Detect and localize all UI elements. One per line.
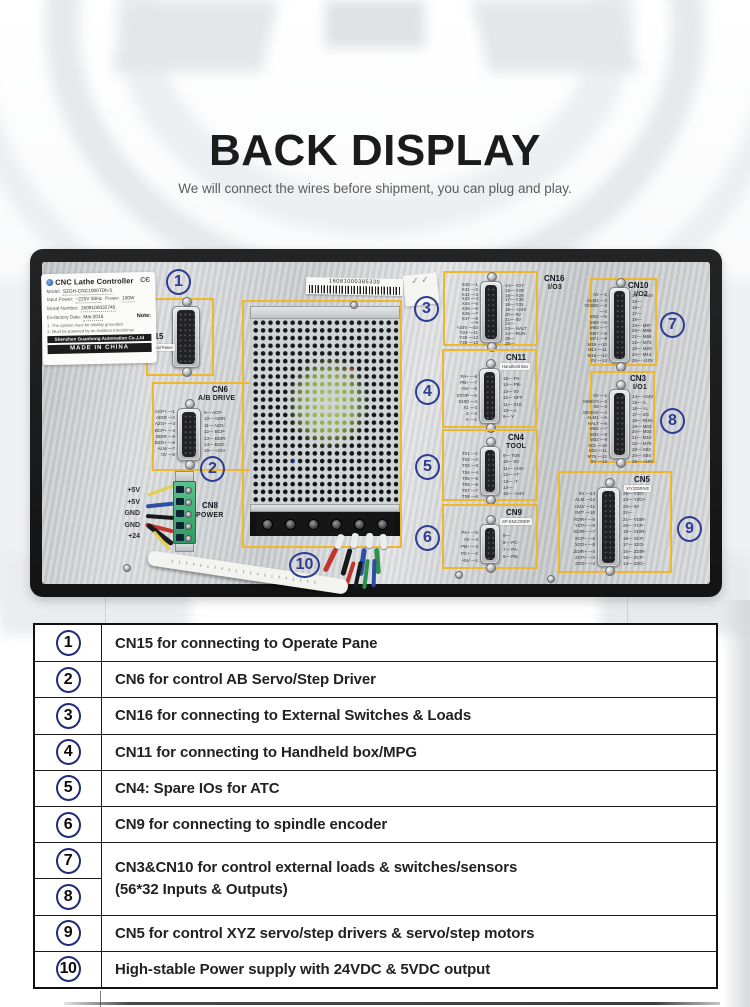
wire-crimp [350,533,359,549]
terminal-screw [185,499,192,506]
cn3-sublabel: I/O1 [633,384,647,392]
cn10-pinout-left: 0V —1ALM2 —2#24/B0 —3—4M22 —5M59 —6M63 —… [592,292,607,364]
row-description: CN16 for connecting to External Switches… [102,698,716,733]
cn8-wire-labels: +5V+5VGNDGND+24 [108,485,140,543]
pin-label: +5V [108,497,140,509]
bg-shape [471,0,639,72]
cn16-label: CN16 [544,274,564,283]
bg-edge-shade [722,600,750,1007]
nameplate-field: Input Power: ~220V 50Hz Power: 100W [47,296,151,304]
row-description: CN9 for connecting to spindle encoder [102,807,716,842]
field-value: ~220V 50Hz [75,297,102,304]
pin-label: T08 —8 [462,494,478,500]
cn11-region: CN11 Handheld Box PA+ —8PB+ —7+5V —6STOP… [442,349,537,428]
wire-crimp [379,534,388,550]
nameplate-origin: MADE IN CHINA [48,343,152,354]
nameplate-brand: CNC Lathe Controller [55,276,138,287]
nameplate-field: Serial Number: 1609100032745 [47,305,151,313]
cn8-label: CN8 [202,501,218,510]
cn5-pinout-left: 0V —13ALM —12+24V —11INT* —10YDIR+ —9YCP… [562,491,595,568]
cn6-pinout-left: ACP+ —1ADIR —2AZO+ —3BCP+ —4BDIR —5BZO+ … [154,409,175,459]
table-row: 4 CN11 for connecting to Handheld box/MP… [35,734,716,770]
row-description-merged: CN3&CN10 for control external loads & sw… [102,843,716,914]
callout-2: 2 [200,456,225,482]
cn3-connector [609,389,630,459]
field-key: Power: [105,297,120,302]
pin-label: 9— [503,533,510,540]
cn15-pins [177,310,195,364]
cn10-connector [609,287,630,363]
field-value: 1609100032745 [81,305,116,312]
row-number-half: 8 [35,879,101,914]
row-description: CN15 for connecting to Operate Pane [102,625,716,661]
row-number-cell: 4 [35,735,102,770]
cn9-pins [485,528,495,560]
callout-1: 1 [166,269,191,295]
terminal-slot [176,534,184,541]
cn4-pins [485,450,495,492]
cn8-sublabel: POWER [196,512,223,520]
pin-label: 0V —8 [161,452,175,458]
cn3-region: CN3 I/O1 0V —1M08/Y3 —2X8 —3M04/A0 —4ALM… [590,371,655,463]
number-badge: 1 [56,630,81,656]
cn11-pinout-left: PA+ —8PB+ —7+5V —6STOP —5X100 —4X1 —3Z —… [446,374,477,424]
number-badge: 8 [56,884,81,910]
terminal-screw [185,511,192,518]
panel-screw [547,575,555,583]
page-subtitle: We will connect the wires before shipmen… [0,181,750,196]
terminal-slot [176,498,184,505]
barcode-sticker: 16081000385330 [306,277,403,296]
terminal-screw [185,487,192,494]
field-key: Model: [46,289,61,294]
cn16-sublabel: I/O3 [548,284,562,292]
number-badge: 5 [56,775,81,801]
cn6-connector [177,408,201,461]
pin-label: ZZO+ —2 [575,561,595,567]
row-number-cell: 9 [35,916,102,951]
row-number-cell: 6 [35,807,102,842]
nameplate-note-line: 2. Must be powered by an isolation trans… [47,328,151,335]
row-number-cell: 3 [35,698,102,733]
page: BACK DISPLAY We will connect the wires b… [0,0,750,1007]
cn10-label: CN10 [628,281,648,290]
callout-4: 4 [415,379,440,405]
psu-bottom-cap [250,504,400,512]
cn4-region: CN4 TOOL T01 —1T02 —2T03 —3T04 —4T05 —5T… [442,429,538,501]
cn10-pins [614,291,625,359]
power-supply-region [242,300,402,548]
bg-line [627,597,628,623]
row-description: CN11 for connecting to Handheld box/MPG [102,735,716,770]
callout-9: 9 [677,516,702,542]
pin-label: 25— +10V [632,459,653,465]
pin-label: 15— +24V [503,491,524,497]
number-badge: 6 [56,812,81,838]
nameplate-company: Shenzhen Guanhong Automation Co.,Ltd [47,334,151,343]
pin-label: 7— PA- [503,547,518,554]
row-description: CN4: Spare IOs for ATC [102,771,716,806]
psu-top-cap [250,306,400,319]
field-value: Mar,2016 [83,315,103,321]
table-row: 1 CN15 for connecting to Operate Pane [35,625,716,661]
field-key: Input Power: [47,298,74,304]
barcode-bars [309,285,400,295]
pin-label: +5V —1 [462,558,478,565]
psu-terminal-strip [256,512,394,536]
panel-screw [123,564,131,572]
row-number-cell-split: 7 8 [35,843,102,914]
field-value: SZGH-CNC1000TDb-5 [63,288,112,295]
bg-shape [325,0,425,48]
terminal-slot [176,486,184,493]
legend-table: 1 CN15 for connecting to Operate Pane 2 … [33,623,718,989]
terminal-screw [331,519,342,530]
table-row: 2 CN6 for control AB Servo/Step Driver [35,661,716,697]
terminal-screw [285,519,296,530]
row-number-cell: 2 [35,662,102,697]
cn5-region: CN5 X/Y/ZDRIVE 0V —13ALM —12+24V —11INT*… [558,471,672,573]
cn11-label: CN11 [506,353,526,362]
pin-label: +5V [108,485,140,497]
row-number-cell: 10 [35,952,102,987]
ce-mark: CЄ [140,277,150,284]
bg-shape [111,0,279,72]
terminal-screw [185,535,192,542]
callout-3: 3 [414,296,439,322]
table-row: 9 CN5 for control XYZ servo/step drivers… [35,915,716,951]
cn8-terminal-block [173,481,196,544]
row-number-cell: 5 [35,771,102,806]
cn11-tag: Handheld Box [500,363,530,370]
panel-screw [455,571,463,579]
cn5-connector [597,487,620,567]
cn10-pinout-right: 14— +24V15—16—17—18—19— M9*20— M9521— M6… [632,293,653,364]
pin-label: +24 [108,531,140,543]
field-key: Ex-factory Date: [47,316,81,322]
row-number-half: 7 [35,843,101,879]
cn6-pins [182,412,196,457]
power-supply-unit [250,306,400,536]
terminal-screw [377,519,388,530]
number-badge: 2 [56,667,81,693]
cn6-label: CN6 [212,385,228,394]
pin-label: GND [108,508,140,520]
terminal-screw [185,523,192,530]
cn11-pinout-right: 15— PA-14— PB-13— 0V12— OFF11— X1010— A9… [503,376,523,421]
nameplate-header: CNC Lathe Controller CЄ [46,276,150,287]
cn9-tag: SP-ENCODER [500,518,532,525]
cn3-pins [614,393,625,455]
callout-5: 5 [415,454,440,480]
pin-label: Y26 —13 [459,341,478,346]
pin-label: 0V —4 [464,537,478,544]
pin-label: 8— PC- [503,540,519,547]
number-badge: 10 [56,956,81,982]
number-badge: 3 [56,703,81,729]
cn9-region: CN9 SP-ENCODER PA+ —50V —4PB+ —3PC+ —2+5… [442,504,538,569]
field-note: Note: [137,313,151,319]
cn5-pinout-right: 25— YZO-24— YZO+23— 0V22—21— YDIR-20— YC… [623,491,646,568]
cn9-pinout-right: 9—8— PC-7— PA-6— PB- [503,533,519,561]
terminal-screw [262,519,273,530]
pin-label: 15— +24V [204,448,225,454]
merged-line-1: CN3&CN10 for control external loads & sw… [115,857,517,879]
table-row: 6 CN9 for connecting to spindle encoder [35,806,716,842]
callout-6: 6 [415,525,440,551]
cn16-pinout-right: 14— Y2715— Y2816— Y2917— Y3018— Y3119— +… [505,284,527,346]
bg-line [105,597,106,623]
pin-label: X —1 [466,417,477,423]
callout-8: 8 [660,408,685,434]
pin-label: PB+ —3 [461,544,478,551]
table-row: 3 CN16 for connecting to External Switch… [35,697,716,733]
pin-label: 25— +10V [632,358,653,364]
panel-screw [350,301,358,309]
cn10-region: CN10 I/O2 0V —1ALM2 —2#24/B0 —3—4M22 —5M… [590,278,657,366]
pin-label: PC+ —2 [461,551,478,558]
cn11-connector [479,368,500,424]
terminal-slot [176,522,184,529]
pin-label: 26— [505,342,515,347]
merged-line-2: (56*32 Inputs & Outputs) [115,879,288,901]
cn3-pinout-left: 0V —1M08/Y3 —2X8 —3M04/A0 —4ALM1 —5HALT … [592,393,607,465]
field-key: Serial Number: [47,306,79,312]
row-number-cell: 1 [35,625,102,661]
nameplate-sticker: CNC Lathe Controller CЄ Model: SZGH-CNC1… [41,272,157,365]
cn16-region: CN16 I/O3 X40 —1X41 —2X42 —3X43 —4X44 —5… [443,271,538,346]
cn15-connector [172,306,200,368]
cn9-pinout-left: PA+ —50V —4PB+ —3PC+ —2+5V —1 [452,530,478,565]
row-description: CN6 for control AB Servo/Step Driver [102,662,716,697]
cn6-pinout-right: 9— ACP-10— ADIR11— AZO-12— BCP-13— BDIR1… [204,410,226,455]
cn16-connector [480,281,502,343]
number-badge: 7 [56,848,81,874]
number-badge: 4 [56,739,81,765]
cn16-pins [485,285,497,339]
cn9-label: CN9 [506,508,522,517]
psu-perforated-cover [250,319,400,504]
terminal-screw [354,519,365,530]
table-row-merged: 7 8 CN3&CN10 for control external loads … [35,842,716,914]
cn4-pinout-left: T01 —1T02 —2T03 —3T04 —4T05 —5T06 —6T07 … [448,451,478,501]
callout-10: 10 [289,552,320,578]
pin-label: 14— ZZO- [623,561,644,567]
next-table-border-peek [64,1002,720,1005]
wire-crimp [366,533,374,548]
cn3-label: CN3 [630,374,646,383]
row-description: High-stable Power supply with 24VDC & 5V… [102,952,716,987]
cn3-pinout-right: 14— +24V15— -L16— +L17— ZG18— RUN19— M03… [632,394,653,465]
brand-logo-icon [46,279,53,286]
cn4-pinout-right: 9— TOK10— 0V11— +24V12— +T13— -T14—15— +… [503,453,524,498]
terminal-slot [176,510,184,517]
cn4-label: CN4 [508,433,524,442]
page-title: BACK DISPLAY [0,128,750,174]
nameplate-field: Model: SZGH-CNC1000TDb-5 [46,288,150,296]
table-row: 10 High-stable Power supply with 24VDC &… [35,951,716,987]
pin-label: 0V —13 [591,358,607,364]
cn5-pins [602,491,615,563]
cn9-connector [480,524,500,564]
pin-label: GND [108,520,140,532]
callout-7: 7 [660,312,685,338]
table-row: 5 CN4: Spare IOs for ATC [35,770,716,806]
cn11-pins [484,372,495,420]
row-description: CN5 for control XYZ servo/step drivers &… [102,916,716,951]
pin-label: PA+ —5 [461,530,478,537]
hero-section: BACK DISPLAY We will connect the wires b… [0,128,750,196]
cn4-sublabel: TOOL [506,443,526,451]
cn4-connector [480,446,500,496]
cn5-label: CN5 [634,475,650,484]
cn16-pinout-left: X40 —1X41 —2X42 —3X43 —4X44 —5X45 —6X46 … [447,283,478,345]
field-value: 100W [122,296,135,302]
number-badge: 9 [56,920,81,946]
pin-label: 9— Y [503,414,514,420]
cn6-sublabel: A/B DRIVE [198,395,235,403]
controller-back-photo: CNC Lathe Controller CЄ Model: SZGH-CNC1… [30,249,722,597]
pin-label: 0V —13 [591,459,607,465]
terminal-screw [308,519,319,530]
pin-label: 6— PB- [503,554,519,561]
